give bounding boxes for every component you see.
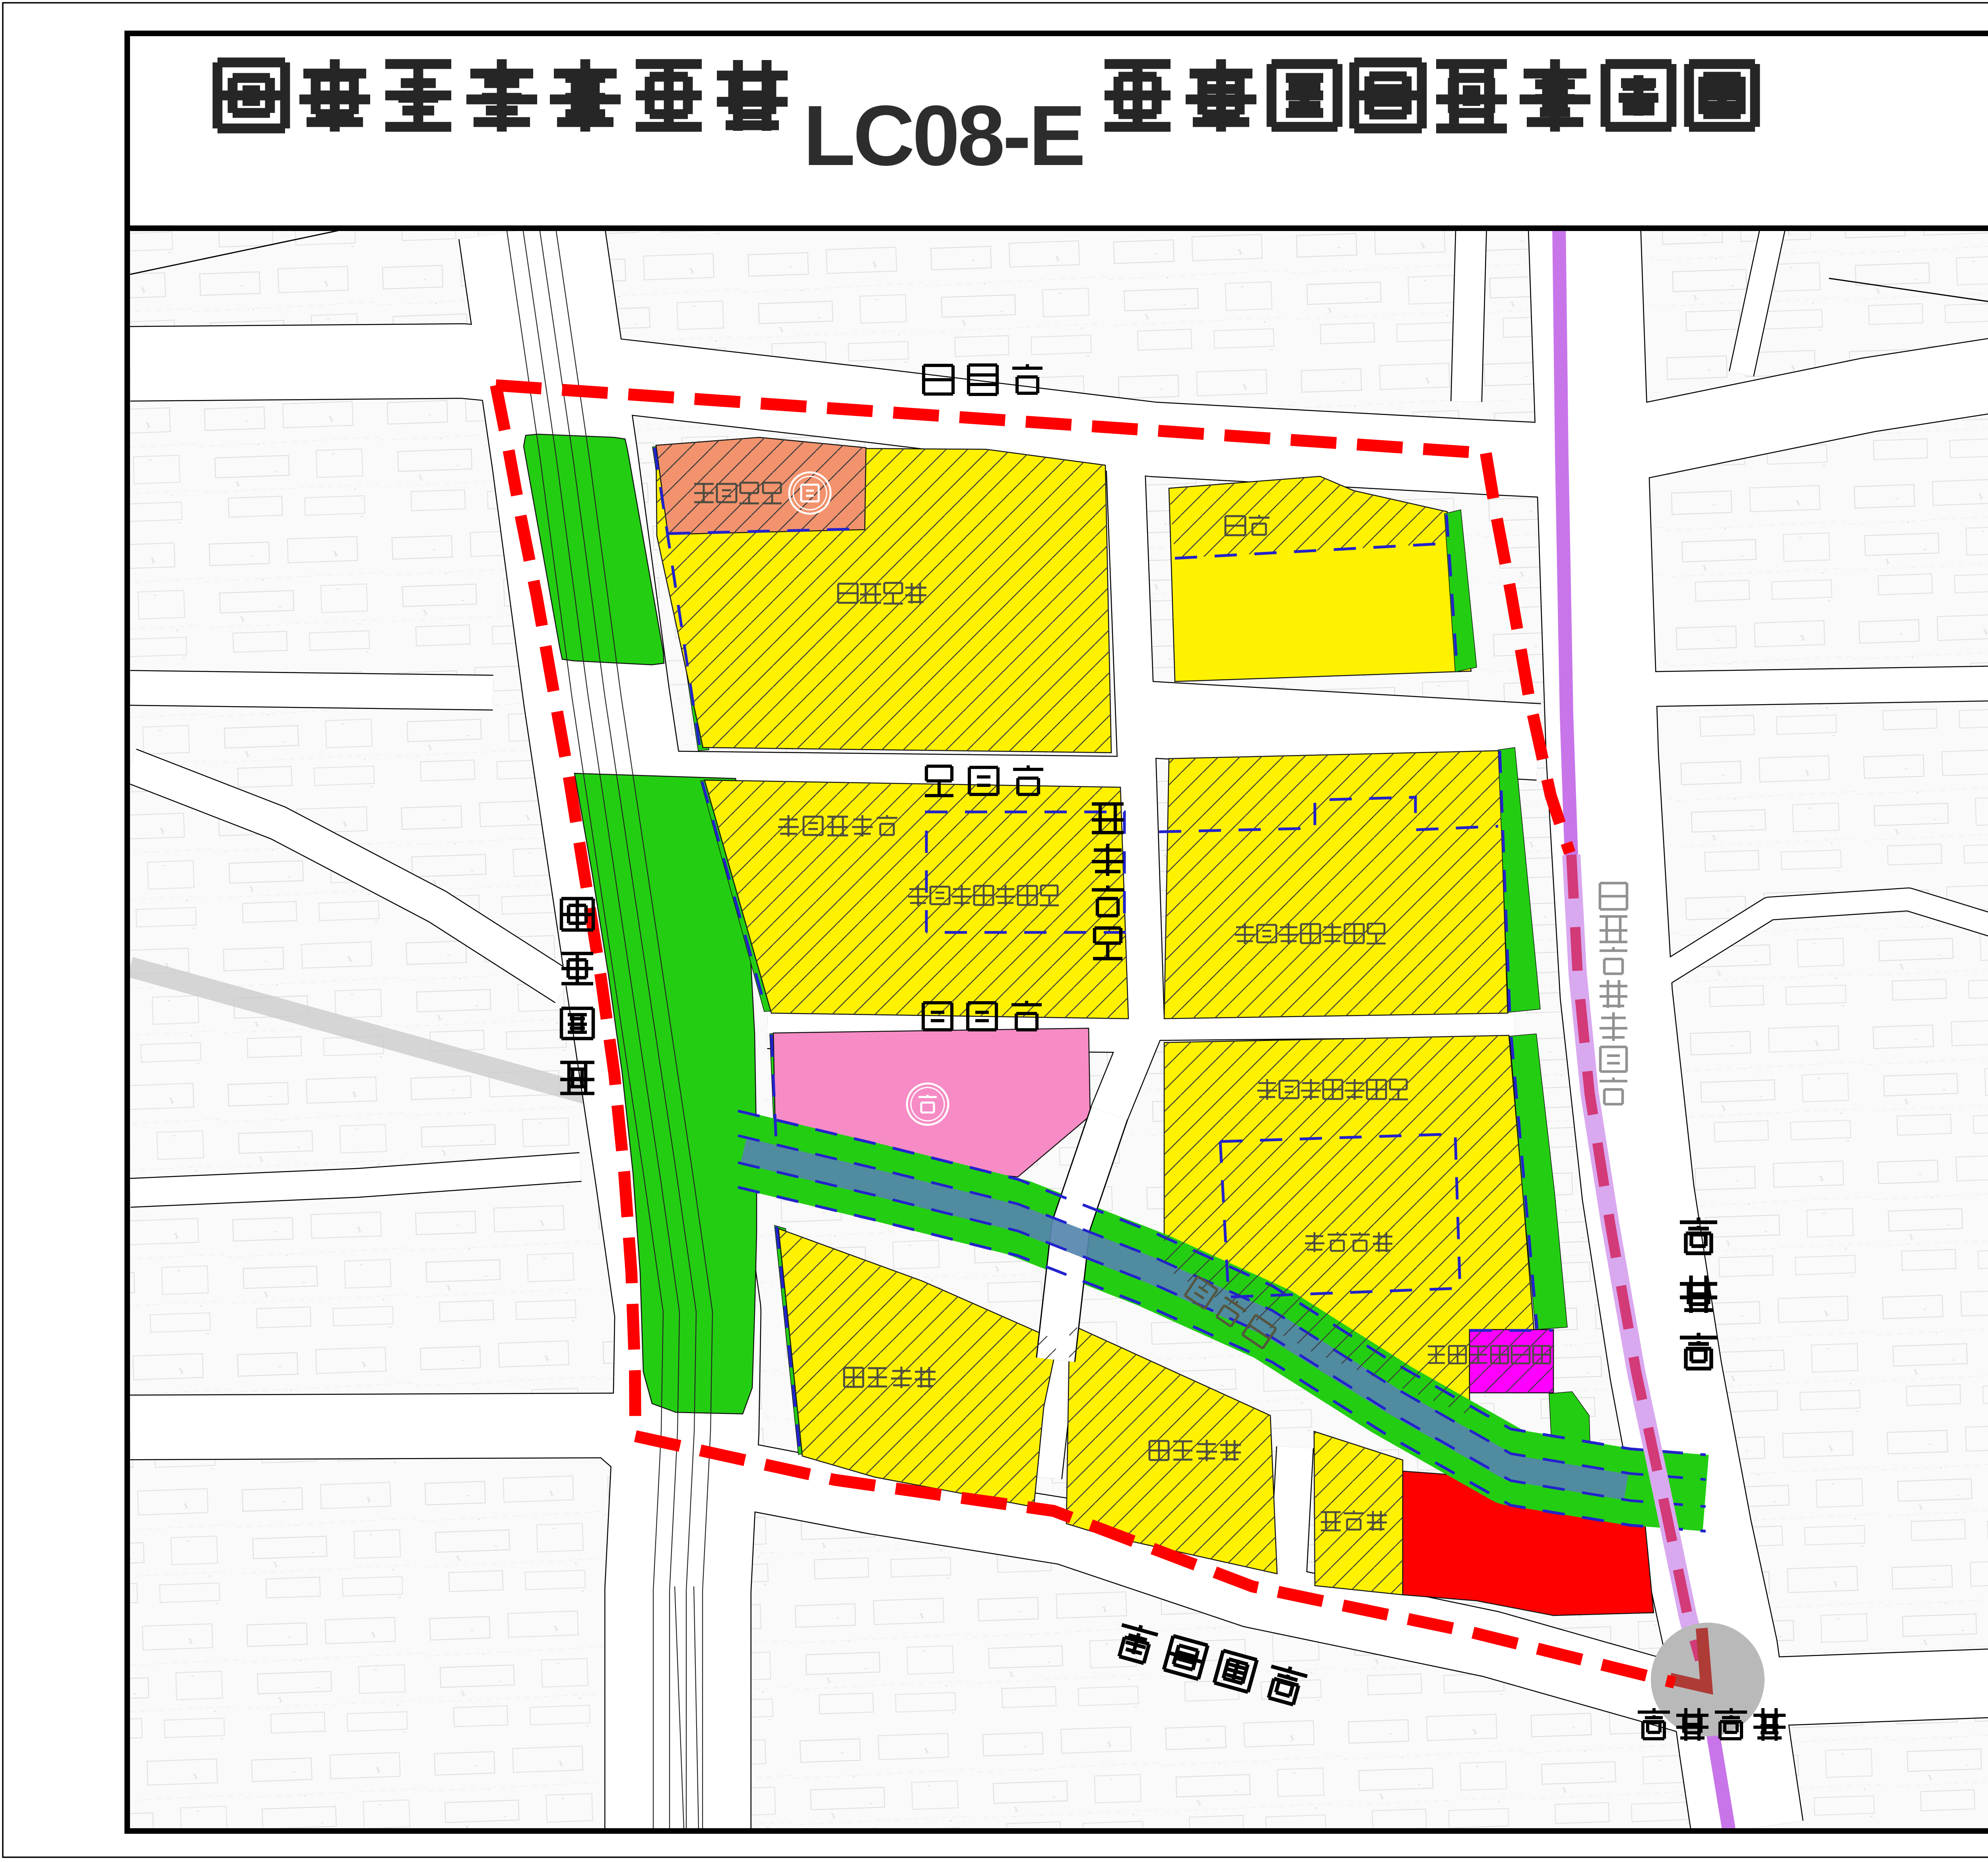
svg-text:LC08-E: LC08-E bbox=[803, 87, 1083, 183]
